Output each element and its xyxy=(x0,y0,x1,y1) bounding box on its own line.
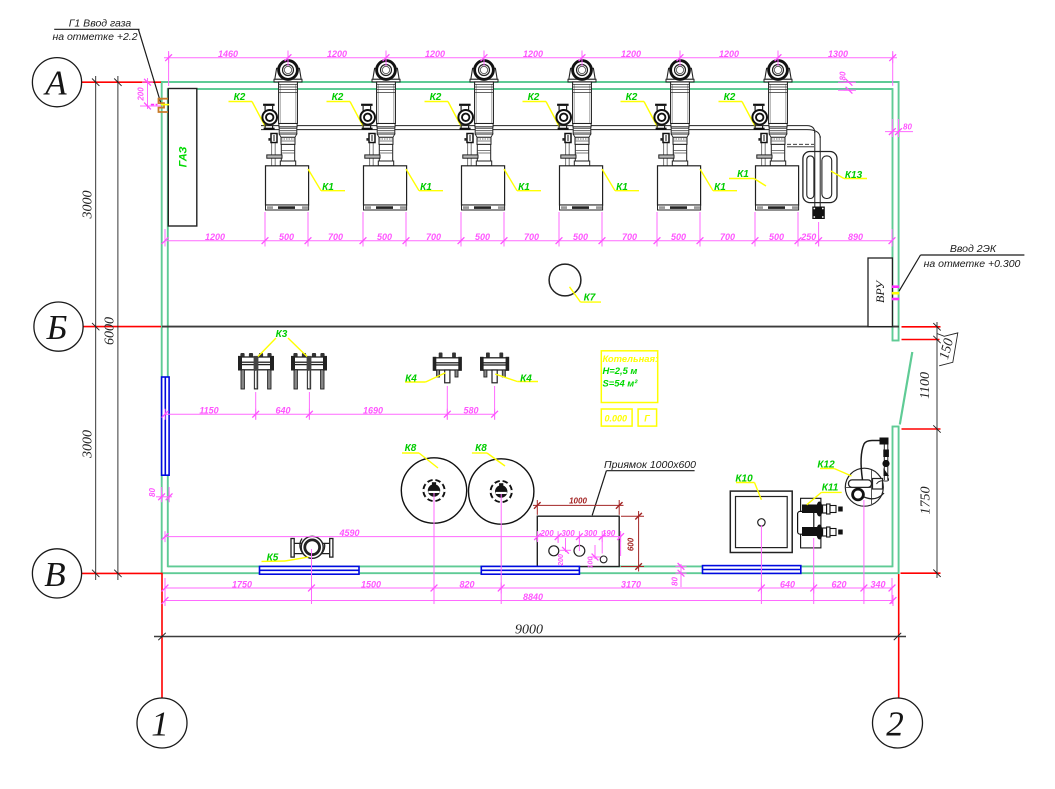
svg-text:К4: К4 xyxy=(405,374,417,385)
svg-text:1460: 1460 xyxy=(218,49,238,59)
svg-text:700: 700 xyxy=(426,232,441,242)
svg-text:200: 200 xyxy=(539,529,554,538)
svg-text:К8: К8 xyxy=(475,443,487,454)
svg-text:Н=2,5 м: Н=2,5 м xyxy=(603,365,638,376)
svg-text:1200: 1200 xyxy=(621,49,641,59)
svg-text:600: 600 xyxy=(627,537,636,551)
svg-text:1690: 1690 xyxy=(363,406,383,416)
svg-text:1200: 1200 xyxy=(523,49,543,59)
svg-text:700: 700 xyxy=(328,232,343,242)
svg-text:1200: 1200 xyxy=(719,49,739,59)
svg-text:Приямок 1000х600: Приямок 1000х600 xyxy=(604,459,696,471)
svg-text:3170: 3170 xyxy=(621,579,641,589)
svg-text:3000: 3000 xyxy=(81,191,96,220)
svg-text:К12: К12 xyxy=(817,460,835,471)
svg-text:Ввод 2ЭК: Ввод 2ЭК xyxy=(950,243,997,255)
svg-text:К7: К7 xyxy=(584,293,596,304)
svg-text:1000: 1000 xyxy=(569,497,587,506)
svg-text:на отметке +2.2: на отметке +2.2 xyxy=(52,31,137,43)
svg-text:250: 250 xyxy=(800,232,816,242)
svg-text:300: 300 xyxy=(584,529,598,538)
svg-text:300: 300 xyxy=(561,529,575,538)
svg-text:500: 500 xyxy=(573,232,588,242)
svg-text:4590: 4590 xyxy=(338,528,359,538)
svg-text:1750: 1750 xyxy=(919,487,934,515)
svg-text:К1: К1 xyxy=(737,169,749,180)
svg-text:0.000: 0.000 xyxy=(605,414,628,424)
svg-text:К4: К4 xyxy=(520,374,532,385)
svg-text:1: 1 xyxy=(151,705,169,744)
svg-text:ВРУ: ВРУ xyxy=(873,279,887,303)
svg-text:100: 100 xyxy=(588,557,595,569)
svg-text:340: 340 xyxy=(870,579,885,589)
svg-text:К13: К13 xyxy=(845,170,863,181)
svg-text:200: 200 xyxy=(137,87,146,102)
svg-text:8840: 8840 xyxy=(523,592,543,602)
svg-text:1750: 1750 xyxy=(232,579,252,589)
svg-text:К11: К11 xyxy=(822,483,839,494)
svg-text:500: 500 xyxy=(769,232,784,242)
svg-text:К1: К1 xyxy=(420,182,432,193)
svg-text:К2: К2 xyxy=(626,92,638,103)
svg-text:К2: К2 xyxy=(332,92,344,103)
svg-text:80: 80 xyxy=(903,123,912,132)
svg-text:890: 890 xyxy=(848,232,863,242)
svg-text:К2: К2 xyxy=(234,92,246,103)
svg-text:1500: 1500 xyxy=(361,579,381,589)
svg-text:К1: К1 xyxy=(616,182,628,193)
svg-text:А: А xyxy=(43,64,67,103)
svg-text:Котельная:: Котельная: xyxy=(603,353,659,364)
svg-text:80: 80 xyxy=(671,577,680,586)
svg-text:500: 500 xyxy=(475,232,490,242)
svg-text:1200: 1200 xyxy=(205,232,225,242)
svg-text:К1: К1 xyxy=(322,182,334,193)
svg-text:Г: Г xyxy=(644,414,650,424)
svg-text:К3: К3 xyxy=(276,329,288,340)
svg-text:6000: 6000 xyxy=(103,317,118,345)
svg-text:К2: К2 xyxy=(724,92,736,103)
svg-text:9000: 9000 xyxy=(515,623,543,638)
svg-text:К10: К10 xyxy=(735,474,753,485)
svg-text:К2: К2 xyxy=(430,92,442,103)
svg-text:К1: К1 xyxy=(518,182,530,193)
svg-text:700: 700 xyxy=(720,232,735,242)
svg-text:580: 580 xyxy=(463,406,478,416)
svg-text:1200: 1200 xyxy=(425,49,445,59)
svg-text:640: 640 xyxy=(780,579,795,589)
svg-text:3000: 3000 xyxy=(81,430,96,459)
svg-text:К5: К5 xyxy=(267,553,279,564)
svg-text:1200: 1200 xyxy=(327,49,347,59)
svg-text:820: 820 xyxy=(459,579,474,589)
svg-text:620: 620 xyxy=(831,579,846,589)
svg-text:500: 500 xyxy=(377,232,392,242)
svg-text:1300: 1300 xyxy=(828,49,848,59)
svg-text:500: 500 xyxy=(671,232,686,242)
svg-text:80: 80 xyxy=(839,71,848,80)
svg-text:1100: 1100 xyxy=(918,372,933,399)
svg-text:200: 200 xyxy=(558,554,565,567)
svg-text:Г1 Ввод газа: Г1 Ввод газа xyxy=(69,18,132,30)
svg-text:К2: К2 xyxy=(528,92,540,103)
svg-text:700: 700 xyxy=(622,232,637,242)
svg-text:К8: К8 xyxy=(405,443,417,454)
svg-text:Б: Б xyxy=(46,308,68,347)
svg-text:80: 80 xyxy=(148,488,157,497)
svg-text:2: 2 xyxy=(886,705,904,744)
svg-text:500: 500 xyxy=(279,232,294,242)
svg-text:1150: 1150 xyxy=(199,406,218,416)
svg-text:190: 190 xyxy=(602,529,616,538)
svg-text:700: 700 xyxy=(524,232,539,242)
svg-text:ГАЗ: ГАЗ xyxy=(178,147,190,168)
svg-text:В: В xyxy=(44,555,65,594)
svg-text:S=54 м²: S=54 м² xyxy=(603,378,639,389)
svg-text:640: 640 xyxy=(275,406,290,416)
svg-text:К1: К1 xyxy=(714,182,726,193)
svg-text:на отметке +0.300: на отметке +0.300 xyxy=(924,258,1021,270)
